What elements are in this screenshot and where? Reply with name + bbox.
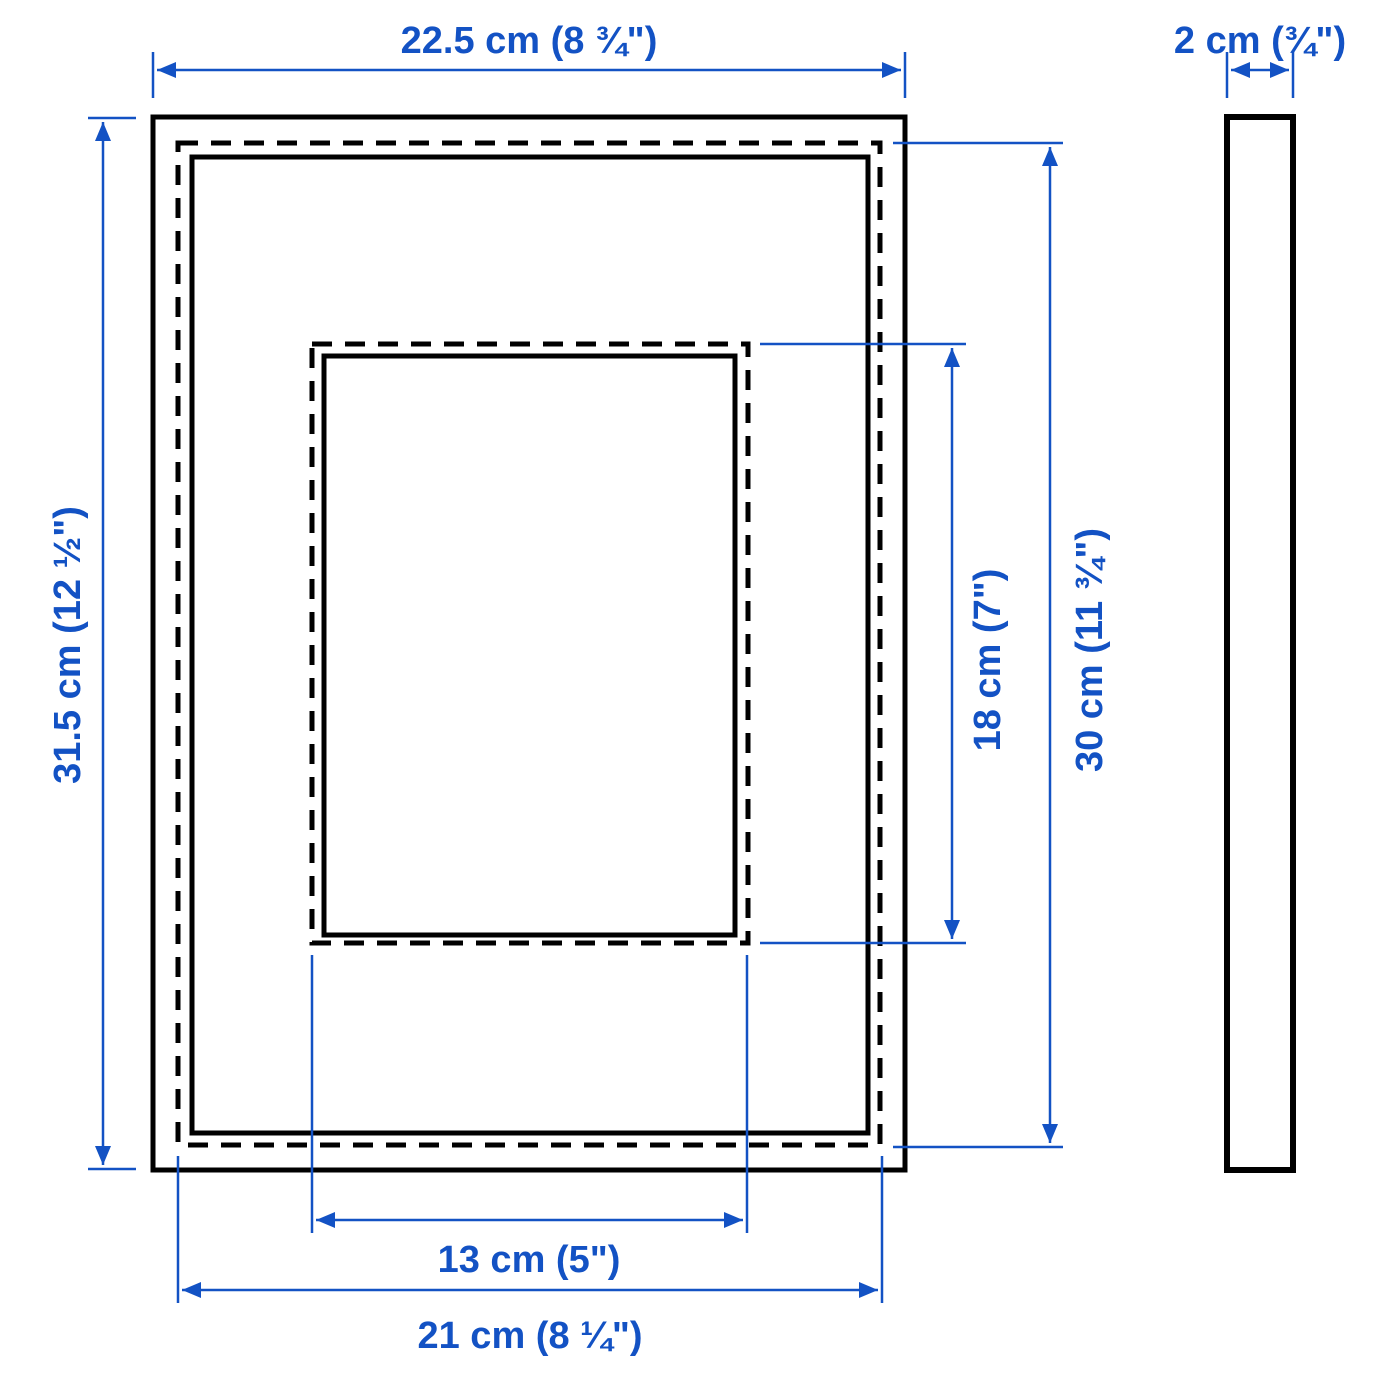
dimension-outer-width: 22.5 cm (8 ¾") <box>153 20 905 98</box>
frame-dimension-diagram: 22.5 cm (8 ¾") 2 cm (¾") 31.5 cm (12 ½")… <box>0 0 1400 1400</box>
frame-back-dashed-outline <box>178 143 880 1145</box>
dimension-label: 21 cm (8 ¼") <box>417 1315 642 1357</box>
side-profile-rect <box>1227 117 1293 1170</box>
dimension-opening-height: 18 cm (7") <box>760 344 1009 943</box>
dimension-label: 18 cm (7") <box>967 569 1009 752</box>
dimension-label: 2 cm (¾") <box>1174 20 1346 62</box>
dimension-label: 31.5 cm (12 ½") <box>47 506 89 784</box>
picture-opening-dashed-outline <box>312 344 748 943</box>
frame-outer-rect <box>153 117 905 1170</box>
dimension-opening-width: 13 cm (5") <box>312 955 747 1281</box>
dimension-label: 22.5 cm (8 ¾") <box>401 20 658 62</box>
dimension-outer-height: 31.5 cm (12 ½") <box>47 118 136 1169</box>
dimension-diagram-svg: 22.5 cm (8 ¾") 2 cm (¾") 31.5 cm (12 ½")… <box>0 0 1400 1400</box>
dimension-label: 30 cm (11 ¾") <box>1069 528 1111 772</box>
front-view <box>153 117 905 1170</box>
side-view <box>1227 117 1293 1170</box>
picture-opening-rect <box>324 356 735 935</box>
frame-front-inner-rect <box>192 157 868 1133</box>
dimension-label: 13 cm (5") <box>438 1239 621 1281</box>
dimension-frame-depth: 2 cm (¾") <box>1174 20 1346 98</box>
